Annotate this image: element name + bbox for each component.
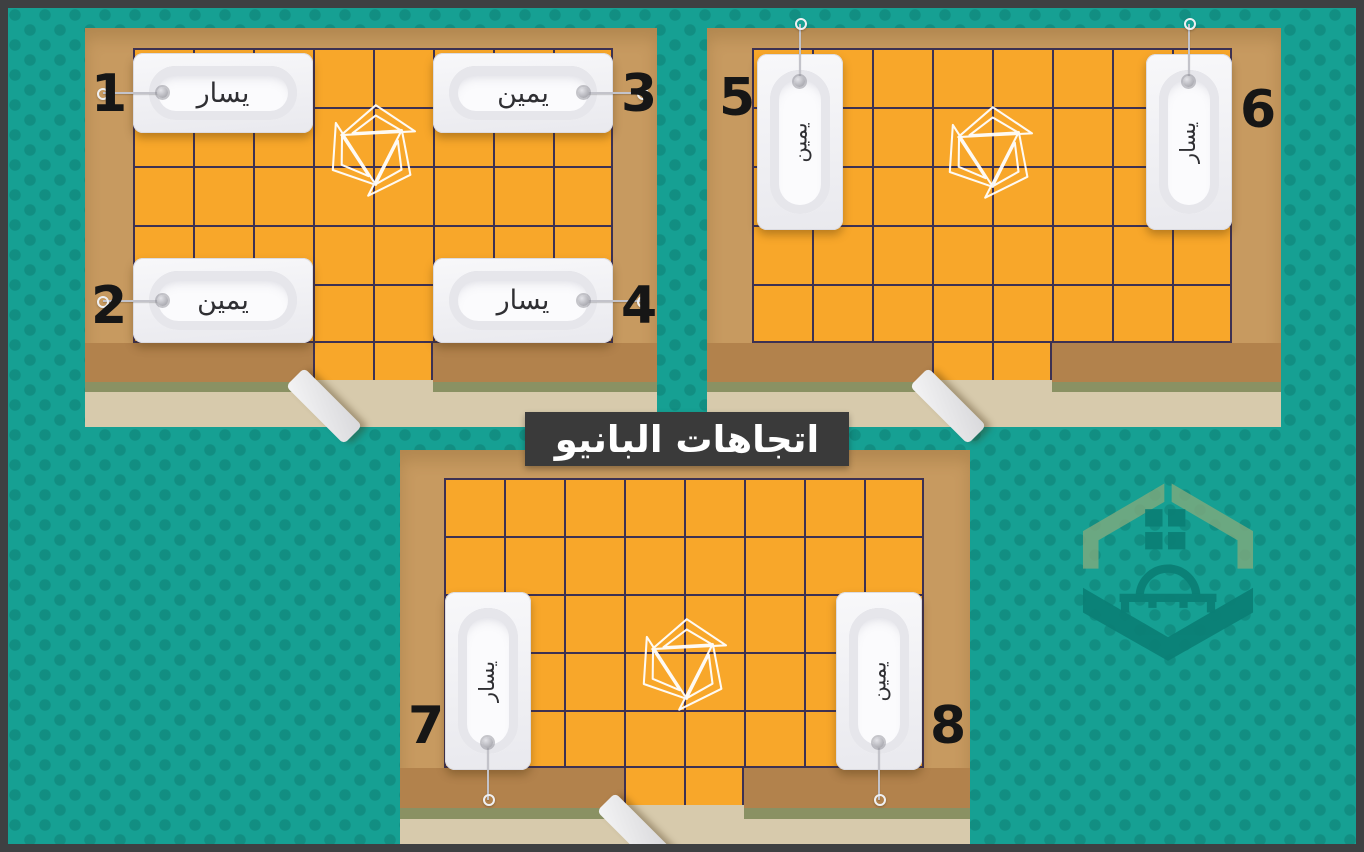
tub-direction-label: يسار bbox=[497, 287, 550, 314]
baseboard-left bbox=[85, 382, 313, 392]
doorway-tiles bbox=[624, 768, 744, 805]
baseboard-left bbox=[400, 808, 624, 819]
baseboard-left bbox=[707, 382, 932, 392]
baseboard-right bbox=[1052, 382, 1281, 392]
tub-basin: يسار bbox=[149, 66, 297, 120]
tub-number-1: 1 bbox=[91, 68, 127, 120]
tag-cord bbox=[1188, 24, 1190, 78]
tub-direction-label: يمين bbox=[869, 661, 890, 701]
bathtub-1: يسار bbox=[133, 53, 313, 133]
tag-cord bbox=[878, 746, 880, 800]
tub-direction-label: يسار bbox=[1179, 121, 1200, 162]
tub-basin: يمين bbox=[849, 608, 909, 754]
tub-basin: يسار bbox=[1159, 70, 1219, 214]
tub-number-5: 5 bbox=[719, 72, 755, 124]
drain-plug-icon bbox=[482, 737, 493, 748]
floorplan-room-3: يسار يمين 7 8 bbox=[400, 450, 970, 852]
tub-basin: يمين bbox=[770, 70, 830, 214]
tag-cord bbox=[799, 24, 801, 78]
tub-basin: يسار bbox=[449, 271, 597, 330]
bathtub-8: يمين bbox=[836, 592, 922, 770]
drain-plug-icon bbox=[873, 737, 884, 748]
tub-basin: يمين bbox=[149, 271, 297, 330]
tub-direction-label: يسار bbox=[197, 80, 250, 107]
bathtub-6: يسار bbox=[1146, 54, 1232, 230]
drain-plug-icon bbox=[578, 295, 589, 306]
bathtub-5: يمين bbox=[757, 54, 843, 230]
tub-basin: يسار bbox=[458, 608, 518, 754]
bathtub-3: يمين bbox=[433, 53, 613, 133]
title-banner: اتجاهات البانيو bbox=[525, 412, 849, 466]
tag-cord bbox=[487, 746, 489, 800]
tub-number-7: 7 bbox=[408, 700, 444, 752]
tub-number-8: 8 bbox=[930, 700, 966, 752]
bathtub-7: يسار bbox=[445, 592, 531, 770]
tub-direction-label: يسار bbox=[478, 660, 499, 701]
tub-number-4: 4 bbox=[621, 280, 657, 332]
drain-plug-icon bbox=[157, 87, 168, 98]
door-threshold bbox=[313, 380, 433, 392]
tub-number-6: 6 bbox=[1240, 84, 1276, 136]
bathtub-directions-infographic: يسار يمين يمين يسار bbox=[0, 0, 1364, 852]
floorplan-room-1: يسار يمين يمين يسار bbox=[85, 28, 657, 427]
bathtub-2: يمين bbox=[133, 258, 313, 343]
tag-hook-icon bbox=[483, 794, 495, 806]
doorway-tiles bbox=[932, 343, 1052, 380]
baseboard-right bbox=[744, 808, 970, 819]
drain-plug-icon bbox=[794, 76, 805, 87]
hallway-floor bbox=[400, 819, 970, 852]
pinwheel-triangles-icon bbox=[934, 96, 1046, 208]
tag-hook-icon bbox=[795, 18, 807, 30]
page-title: اتجاهات البانيو bbox=[555, 421, 820, 458]
tub-number-3: 3 bbox=[621, 68, 657, 120]
drain-plug-icon bbox=[157, 295, 168, 306]
pinwheel-triangles-icon bbox=[317, 94, 429, 206]
tub-direction-label: يمين bbox=[497, 80, 549, 107]
bathtub-4: يسار bbox=[433, 258, 613, 343]
tag-hook-icon bbox=[874, 794, 886, 806]
house-home-logo-icon bbox=[1072, 478, 1264, 661]
doorway-tiles bbox=[313, 343, 433, 380]
tub-basin: يمين bbox=[449, 66, 597, 120]
door-threshold bbox=[624, 805, 744, 819]
drain-plug-icon bbox=[578, 87, 589, 98]
tub-number-2: 2 bbox=[91, 280, 127, 332]
floorplan-room-2: يمين يسار 5 6 bbox=[707, 28, 1281, 427]
tub-direction-label: يمين bbox=[197, 287, 249, 314]
tub-direction-label: يمين bbox=[790, 122, 811, 162]
tag-hook-icon bbox=[1184, 18, 1196, 30]
pinwheel-triangles-icon bbox=[628, 608, 740, 720]
baseboard-right bbox=[433, 382, 657, 392]
drain-plug-icon bbox=[1183, 76, 1194, 87]
